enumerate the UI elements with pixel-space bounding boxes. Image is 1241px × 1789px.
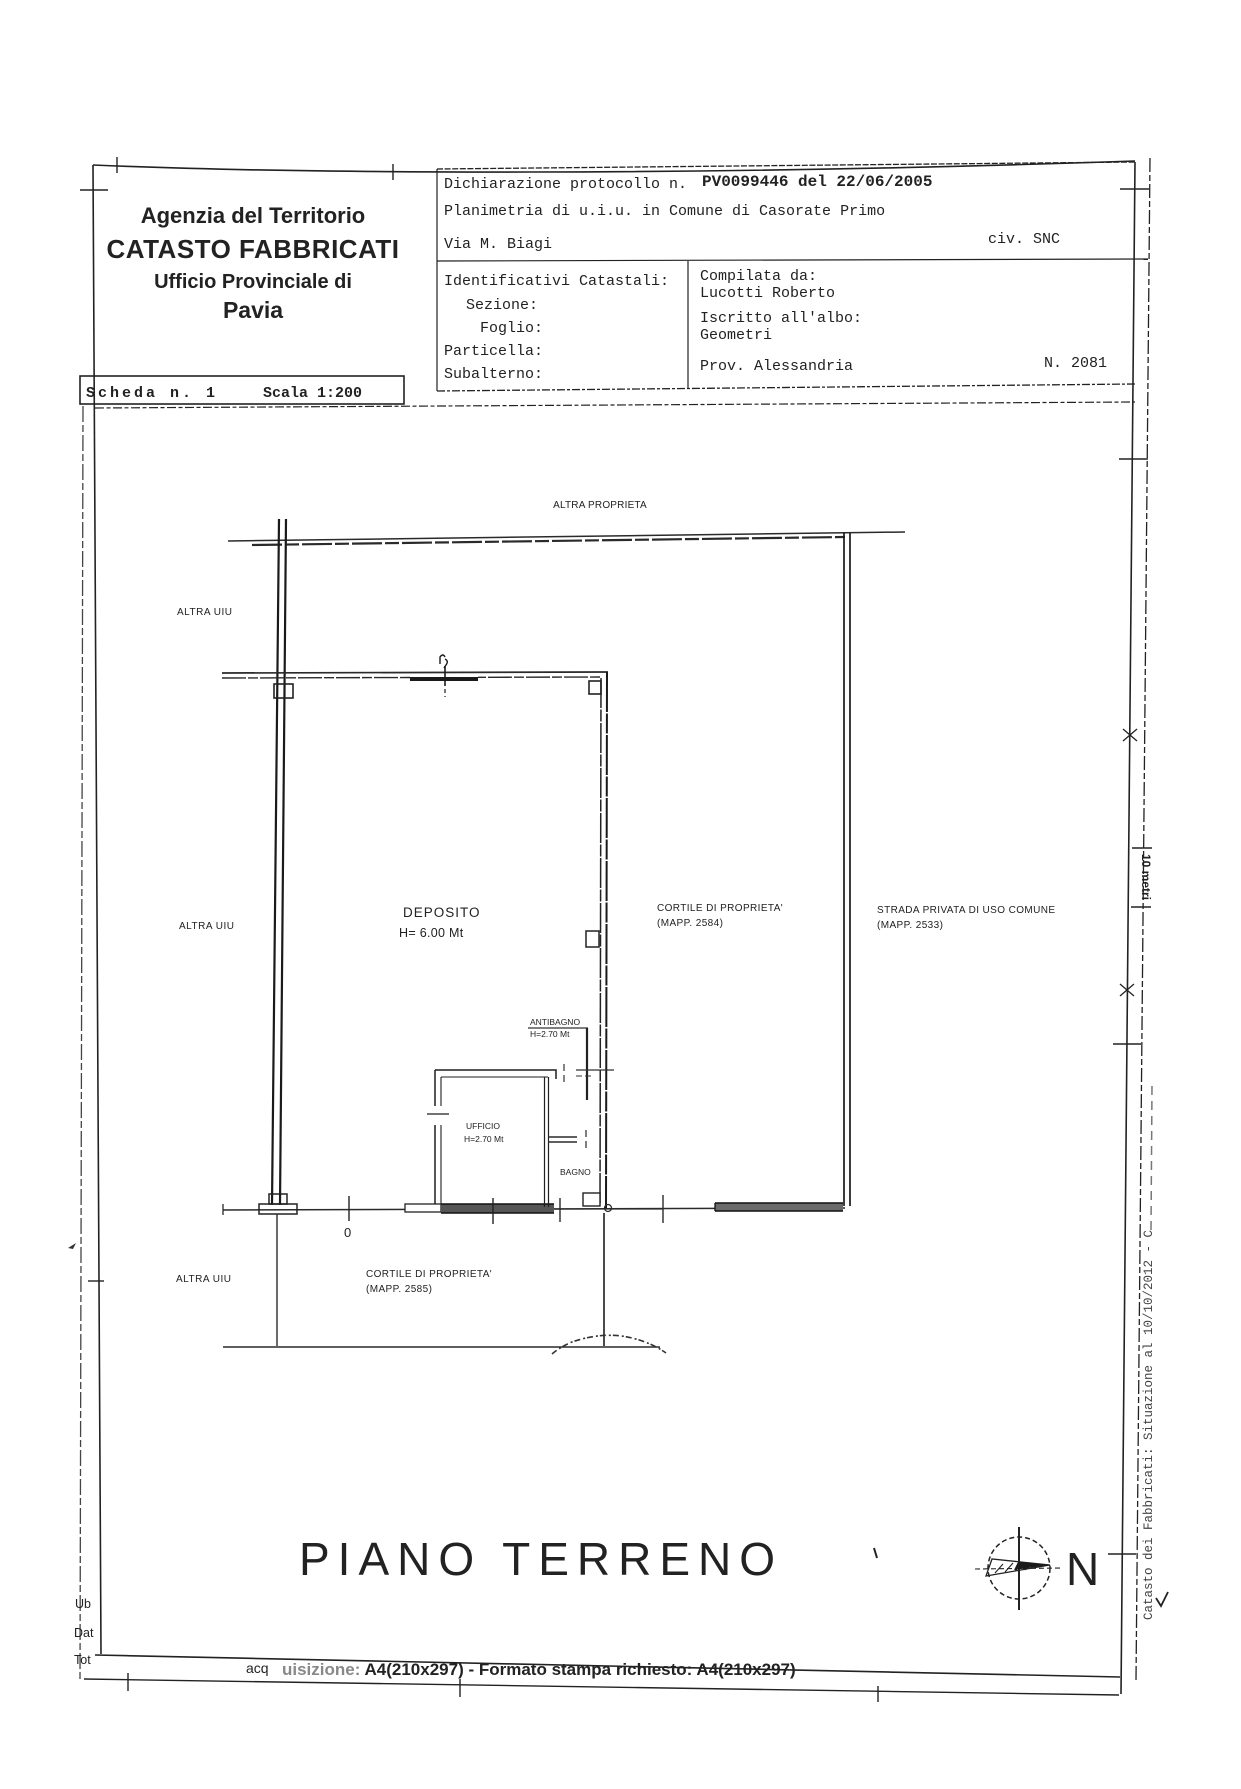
- svg-text:Subalterno:: Subalterno:: [444, 366, 543, 383]
- svg-text:UFFICIO: UFFICIO: [466, 1121, 500, 1131]
- svg-text:(MAPP. 2533): (MAPP. 2533): [877, 920, 943, 931]
- svg-text:Planimetria di u.i.u. in Comun: Planimetria di u.i.u. in Comune di Casor…: [444, 203, 885, 220]
- svg-text:Identificativi Catastali:: Identificativi Catastali:: [444, 273, 669, 290]
- svg-text:Scala 1:200: Scala 1:200: [263, 385, 362, 402]
- svg-text:ALTRA PROPRIETA: ALTRA PROPRIETA: [553, 500, 647, 511]
- svg-text:Tot: Tot: [74, 1653, 91, 1667]
- svg-text:(MAPP. 2584): (MAPP. 2584): [657, 918, 723, 929]
- svg-text:Ub: Ub: [75, 1597, 91, 1611]
- svg-text:BAGNO: BAGNO: [560, 1167, 591, 1177]
- svg-text:DEPOSITO: DEPOSITO: [403, 905, 481, 920]
- svg-text:N: N: [1066, 1543, 1099, 1595]
- svg-text:ALTRA UIU: ALTRA UIU: [179, 921, 234, 932]
- svg-text:STRADA PRIVATA DI USO COMUNE: STRADA PRIVATA DI USO COMUNE: [877, 905, 1055, 916]
- svg-text:CORTILE DI PROPRIETA': CORTILE DI PROPRIETA': [366, 1269, 492, 1280]
- svg-text:civ. SNC: civ. SNC: [988, 231, 1060, 248]
- svg-text:CORTILE DI PROPRIETA': CORTILE DI PROPRIETA': [657, 903, 783, 914]
- svg-text:acq: acq: [246, 1660, 269, 1676]
- svg-text:Pavia: Pavia: [223, 297, 283, 323]
- svg-text:CATASTO FABBRICATI: CATASTO FABBRICATI: [106, 234, 399, 264]
- svg-text:Sezione:: Sezione:: [466, 297, 538, 314]
- svg-text:Compilata da:: Compilata da:: [700, 268, 817, 285]
- svg-text:Agenzia del Territorio: Agenzia del Territorio: [141, 203, 366, 228]
- svg-text:N. 2081: N. 2081: [1044, 355, 1107, 372]
- svg-text:Ufficio Provinciale di: Ufficio Provinciale di: [154, 271, 352, 293]
- svg-text:Prov. Alessandria: Prov. Alessandria: [700, 358, 853, 375]
- svg-text:ALTRA UIU: ALTRA UIU: [177, 607, 232, 618]
- svg-text:(MAPP. 2585): (MAPP. 2585): [366, 1284, 432, 1295]
- svg-text:PV0099446 del 22/06/2005: PV0099446 del 22/06/2005: [702, 173, 932, 191]
- svg-text:Via M. Biagi: Via M. Biagi: [444, 236, 552, 253]
- svg-text:H=2.70 Mt: H=2.70 Mt: [464, 1134, 504, 1144]
- svg-text:Dat: Dat: [74, 1626, 94, 1640]
- svg-text:Particella:: Particella:: [444, 343, 543, 360]
- svg-text:Dichiarazione protocollo n.: Dichiarazione protocollo n.: [444, 176, 687, 193]
- svg-text:ALTRA UIU: ALTRA UIU: [176, 1274, 231, 1285]
- svg-text:ANTIBAGNO: ANTIBAGNO: [530, 1017, 580, 1027]
- svg-text:uisizione: A4(210x297) - Forma: uisizione: A4(210x297) - Formato stampa …: [282, 1660, 796, 1679]
- svg-text:Geometri: Geometri: [700, 327, 772, 344]
- svg-text:H= 6.00 Mt: H= 6.00 Mt: [399, 926, 464, 940]
- svg-text:PIANO TERRENO: PIANO TERRENO: [299, 1533, 783, 1585]
- svg-text:H=2.70 Mt: H=2.70 Mt: [530, 1029, 570, 1039]
- svg-text:Catasto dei Fabbricati: Situa: Catasto dei Fabbricati: Situazione al 10…: [1142, 1230, 1156, 1620]
- svg-text:Iscritto all'albo:: Iscritto all'albo:: [700, 310, 862, 327]
- svg-text:Foglio:: Foglio:: [480, 320, 543, 337]
- svg-text:0: 0: [344, 1225, 351, 1240]
- svg-text:Scheda n. 1: Scheda n. 1: [86, 385, 218, 402]
- svg-text:Lucotti Roberto: Lucotti Roberto: [700, 285, 835, 302]
- svg-text:10 metri: 10 metri: [1139, 854, 1153, 900]
